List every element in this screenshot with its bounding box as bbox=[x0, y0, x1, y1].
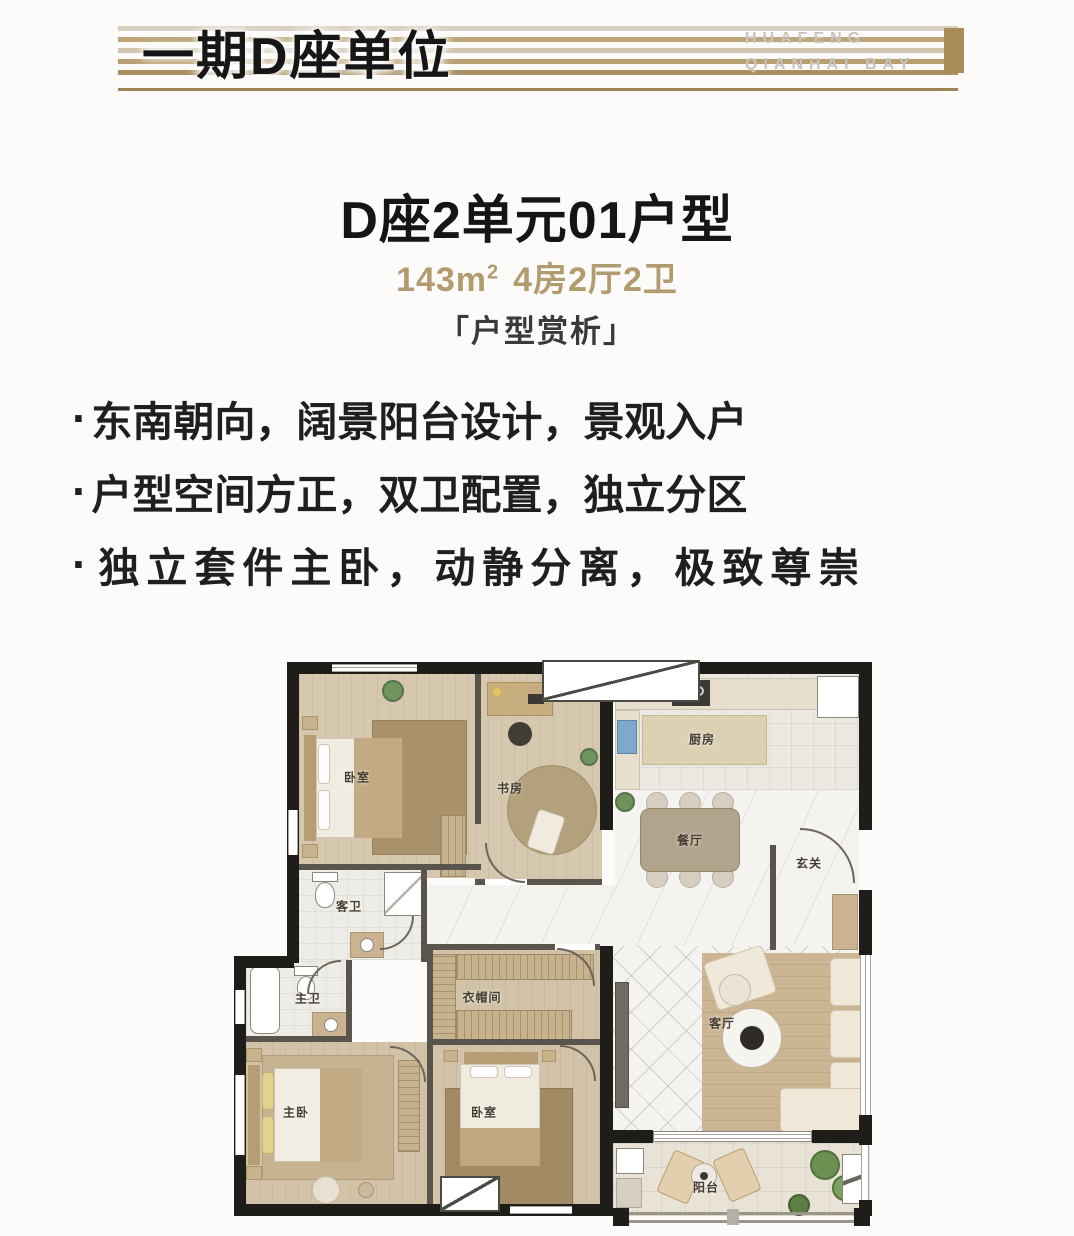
nightstand bbox=[302, 844, 318, 858]
pillow bbox=[470, 1066, 498, 1078]
balcony-glass bbox=[861, 1145, 869, 1200]
pillow bbox=[504, 1066, 532, 1078]
window bbox=[332, 664, 417, 672]
laundry-sink bbox=[616, 1148, 644, 1174]
bullet-dot: · bbox=[72, 541, 94, 587]
room-label-dining: 餐厅 bbox=[677, 832, 703, 849]
feature-text: 独立套件主卧，动静分离，极致尊崇 bbox=[98, 534, 866, 594]
room-label-living: 客厅 bbox=[709, 1015, 735, 1032]
nightstand bbox=[302, 716, 318, 730]
room-label-entry: 玄关 bbox=[796, 855, 822, 872]
unit-area-sup: 2 bbox=[487, 262, 499, 284]
railing-post bbox=[727, 1209, 739, 1225]
feature-text: 东南朝向，阔景阳台设计，景观入户 bbox=[91, 388, 747, 448]
kitchen-sink bbox=[617, 720, 637, 754]
sink bbox=[360, 938, 374, 952]
sliding-door-line bbox=[653, 1138, 812, 1139]
section-tag: 「户型赏析」 bbox=[0, 306, 1074, 351]
brand-line2: QIANHAI BAY bbox=[745, 52, 915, 78]
unit-subtitle: 143m24房2厅2卫 bbox=[0, 252, 1074, 301]
room-label-bedroom-bottom: 卧室 bbox=[471, 1104, 497, 1121]
armchair bbox=[312, 1176, 340, 1204]
side-table bbox=[719, 974, 751, 1006]
room-label-kitchen: 厨房 bbox=[689, 731, 715, 748]
window-line bbox=[865, 955, 866, 1115]
wall bbox=[812, 1130, 870, 1143]
pillow bbox=[262, 1072, 274, 1110]
nightstand bbox=[246, 1048, 262, 1062]
toilet bbox=[315, 882, 335, 908]
plant bbox=[382, 680, 404, 702]
wall bbox=[246, 1036, 352, 1042]
room-label-bedroom-top: 卧室 bbox=[344, 769, 370, 786]
pillow bbox=[318, 744, 330, 784]
desk-lamp bbox=[493, 688, 501, 696]
brand-logo: HUAFENG QIANHAI BAY bbox=[745, 26, 915, 78]
feature-text: 户型空间方正，双卫配置，独立分区 bbox=[91, 461, 747, 521]
wall bbox=[859, 890, 872, 955]
wall bbox=[427, 950, 433, 1045]
bed-blanket bbox=[354, 738, 402, 838]
feature-item: ·户型空间方正，双卫配置，独立分区 bbox=[72, 461, 747, 521]
nightstand bbox=[444, 1050, 458, 1062]
sink bbox=[324, 1018, 338, 1032]
unit-title: D座2单元01户型 bbox=[0, 178, 1074, 253]
wall bbox=[859, 662, 872, 830]
room-label-study: 书房 bbox=[497, 780, 523, 797]
railing bbox=[613, 1212, 870, 1215]
coffee-table-tray bbox=[740, 1026, 764, 1050]
window-line bbox=[332, 667, 417, 668]
plant bbox=[580, 748, 598, 766]
wall bbox=[613, 1130, 653, 1143]
window bbox=[288, 810, 298, 855]
room-label-master-bath: 主卫 bbox=[295, 990, 321, 1007]
corridor-floor bbox=[427, 885, 615, 950]
plant bbox=[615, 792, 635, 812]
wall bbox=[770, 845, 776, 950]
unit-layout: 4房2厅2卫 bbox=[513, 261, 678, 299]
sliding-door bbox=[653, 1131, 812, 1142]
fridge bbox=[817, 676, 859, 718]
floor-plan: 卧室 书房 厨房 餐厅 玄关 客卫 主卫 衣帽间 主卧 卧室 客厅 阳台 bbox=[232, 660, 872, 1228]
brand-line1: HUAFENG bbox=[745, 26, 915, 52]
bullet-dot: · bbox=[72, 468, 87, 514]
ac-platform bbox=[440, 1176, 500, 1212]
window bbox=[510, 1206, 572, 1214]
header-underline bbox=[118, 88, 958, 91]
window bbox=[235, 990, 245, 1024]
window bbox=[235, 1075, 245, 1155]
wall bbox=[234, 1204, 434, 1216]
page-title: 一期D座单位 bbox=[142, 14, 452, 89]
pillow bbox=[318, 790, 330, 830]
wall bbox=[600, 946, 613, 1216]
promo-page: 一期D座单位 HUAFENG QIANHAI BAY D座2单元01户型 143… bbox=[0, 0, 1074, 1236]
railing-pillar bbox=[613, 1208, 629, 1226]
room-label-closet: 衣帽间 bbox=[462, 989, 501, 1006]
nightstand bbox=[246, 1166, 262, 1180]
room-label-balcony: 阳台 bbox=[693, 1179, 719, 1196]
wardrobe-unit bbox=[430, 954, 456, 1042]
shower bbox=[384, 872, 424, 916]
feature-item: ·独立套件主卧，动静分离，极致尊崇 bbox=[72, 534, 866, 594]
plant bbox=[810, 1150, 840, 1180]
wall bbox=[427, 1042, 433, 1208]
sliding-door-line bbox=[653, 1134, 812, 1135]
brand-gold-bar bbox=[944, 28, 964, 73]
wall bbox=[475, 674, 481, 824]
balcony-cabinet bbox=[616, 1178, 642, 1208]
bed-blanket bbox=[320, 1068, 362, 1162]
wardrobe-unit bbox=[456, 1010, 572, 1040]
pillow bbox=[262, 1116, 274, 1154]
feature-item: ·东南朝向，阔景阳台设计，景观入户 bbox=[72, 388, 747, 448]
desk-chair bbox=[508, 722, 532, 746]
wall bbox=[427, 1039, 602, 1045]
toilet-tank bbox=[312, 872, 338, 882]
sofa-chaise bbox=[780, 1088, 868, 1132]
ac-platform bbox=[542, 660, 700, 702]
room-label-master-bedroom: 主卧 bbox=[283, 1104, 309, 1121]
bed-headboard bbox=[304, 735, 316, 841]
railing-pillar bbox=[854, 1208, 870, 1226]
railing bbox=[613, 1220, 870, 1223]
bed-headboard bbox=[248, 1065, 260, 1165]
bed-blanket bbox=[460, 1128, 540, 1166]
wall bbox=[299, 864, 481, 870]
bathtub bbox=[250, 966, 280, 1034]
shoe-cabinet bbox=[832, 894, 858, 950]
bed-headboard bbox=[464, 1052, 538, 1064]
wall bbox=[346, 960, 352, 1042]
pouf bbox=[358, 1182, 374, 1198]
tv-console bbox=[615, 982, 629, 1108]
room-label-guest-bath: 客卫 bbox=[336, 898, 362, 915]
bullet-dot: · bbox=[72, 395, 87, 441]
unit-area: 143m bbox=[396, 261, 487, 299]
nightstand bbox=[542, 1050, 556, 1062]
